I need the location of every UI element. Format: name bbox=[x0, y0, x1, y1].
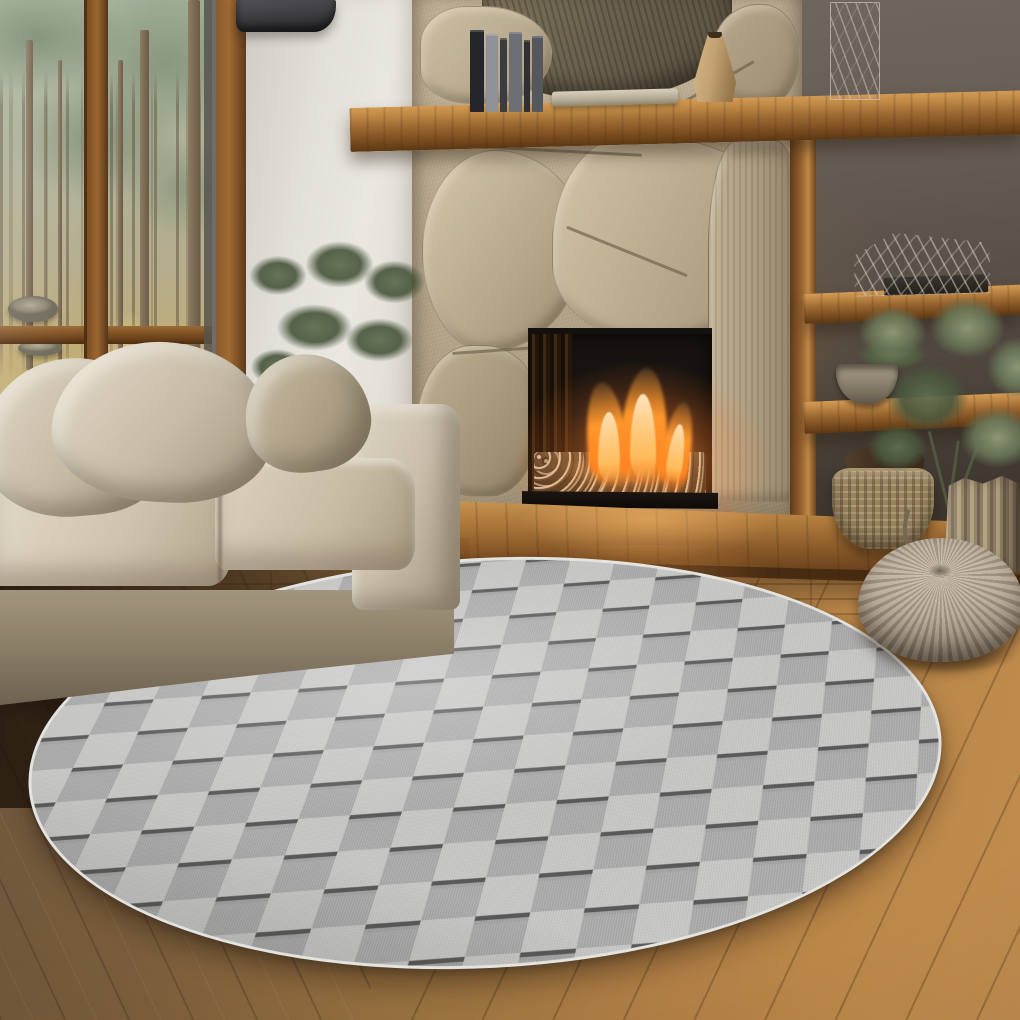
book-spine bbox=[509, 32, 522, 112]
book-spine bbox=[470, 30, 484, 112]
book-spine bbox=[524, 40, 530, 112]
sofa-cushion-seam bbox=[218, 490, 222, 585]
sofa bbox=[0, 340, 468, 706]
vase-mouth bbox=[708, 32, 722, 38]
book-spine bbox=[500, 38, 507, 112]
living-room-photo bbox=[0, 0, 1020, 1020]
book-spine bbox=[486, 34, 498, 112]
pouf-dimple bbox=[928, 564, 952, 578]
plant-foliage bbox=[352, 252, 437, 312]
wire-art-tall bbox=[830, 2, 880, 100]
plant-foliage bbox=[855, 415, 940, 480]
knitted-pouf bbox=[858, 538, 1020, 662]
book-spine bbox=[532, 36, 543, 112]
wall-speaker bbox=[236, 0, 336, 32]
